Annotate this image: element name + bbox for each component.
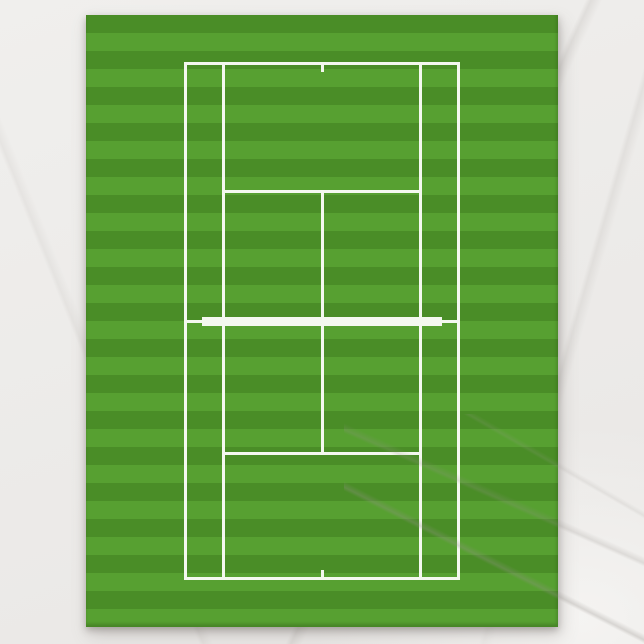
marble-background	[0, 0, 644, 644]
tennis-court	[184, 62, 460, 580]
flyer-paper	[86, 15, 558, 627]
net-band	[202, 317, 442, 326]
center-mark-bottom	[321, 570, 324, 580]
lawn-stripe	[86, 591, 558, 609]
center-mark-top	[321, 62, 324, 72]
lawn-stripe	[86, 15, 558, 33]
lawn-stripe	[86, 33, 558, 51]
lawn-stripe	[86, 609, 558, 627]
